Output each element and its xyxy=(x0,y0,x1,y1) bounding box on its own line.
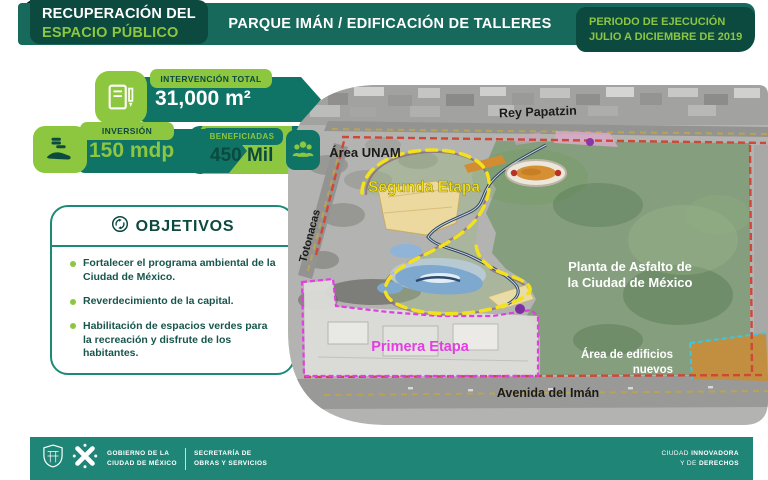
footer-bar: GOBIERNO DE LA CIUDAD DE MÉXICO SECRETAR… xyxy=(30,437,753,480)
footer-dept-text: SECRETARÍA DE OBRAS Y SERVICIOS xyxy=(194,449,267,468)
objective-item: Reverdecimiento de la capital. xyxy=(70,295,279,309)
money-hand-icon xyxy=(33,126,87,173)
area-unam-label: Área UNAM xyxy=(329,145,401,160)
objectives-list: Fortalecer el programa ambiental de la C… xyxy=(52,257,293,361)
footer-slogan: CIUDAD INNOVADORA Y DE DERECHOS xyxy=(662,449,739,468)
stat-intervencion-total: INTERVENCIÓN TOTAL 31,000 m² xyxy=(95,68,330,126)
notebook-pencil-icon xyxy=(95,71,147,124)
objectives-title: OBJETIVOS xyxy=(136,218,235,236)
shield-icon xyxy=(43,443,63,474)
stat-value: 450 Mil xyxy=(210,145,273,167)
asfalto-label-line1: Planta de Asfalto de xyxy=(568,259,692,274)
page-title: PARQUE IMÁN / EDIFICACIÓN DE TALLERES xyxy=(210,3,570,45)
objectives-card: OBJETIVOS Fortalecer el programa ambient… xyxy=(50,205,295,375)
period-label: PERIODO DE EJECUCIÓN xyxy=(589,15,755,30)
program-line1: RECUPERACIÓN DEL xyxy=(42,5,208,24)
stage1-label: Primera Etapa xyxy=(371,339,469,355)
period-box: PERIODO DE EJECUCIÓN JULIO A DICIEMBRE D… xyxy=(576,7,755,52)
divider xyxy=(52,245,293,247)
stat-value: 31,000 m² xyxy=(155,87,251,111)
stage2-label: Segunda Etapa xyxy=(368,179,480,196)
stat-label: INVERSIÓN xyxy=(80,122,174,140)
street-label-avenida-iman: Avenida del Imán xyxy=(497,386,599,400)
circular-arrows-icon xyxy=(111,215,129,238)
footer-divider xyxy=(185,448,186,470)
street-label-rey-papatzin: Rey Papatzin xyxy=(499,104,577,121)
program-ribbon: RECUPERACIÓN DEL ESPACIO PÚBLICO xyxy=(30,0,208,44)
asfalto-label-line2: la Ciudad de México xyxy=(568,275,693,290)
stat-label: INTERVENCIÓN TOTAL xyxy=(150,69,272,88)
objective-item: Habilitación de espacios verdes para la … xyxy=(70,320,279,361)
stat-value: 150 mdp xyxy=(89,139,174,163)
site-map: Rey Papatzin Área UNAM Totonacas Segunda… xyxy=(288,85,768,425)
cdmx-logo-icon xyxy=(71,442,99,475)
objective-item: Fortalecer el programa ambiental de la C… xyxy=(70,257,279,284)
edificios-label-line1: Área de edificios xyxy=(581,348,673,361)
program-line2: ESPACIO PÚBLICO xyxy=(42,24,208,43)
edificios-label-line2: nuevos xyxy=(633,364,673,376)
stat-label: BENEFICIADAS xyxy=(201,128,283,145)
period-value: JULIO A DICIEMBRE DE 2019 xyxy=(589,30,755,45)
people-icon xyxy=(286,130,320,170)
footer-gov-text: GOBIERNO DE LA CIUDAD DE MÉXICO xyxy=(107,449,177,468)
